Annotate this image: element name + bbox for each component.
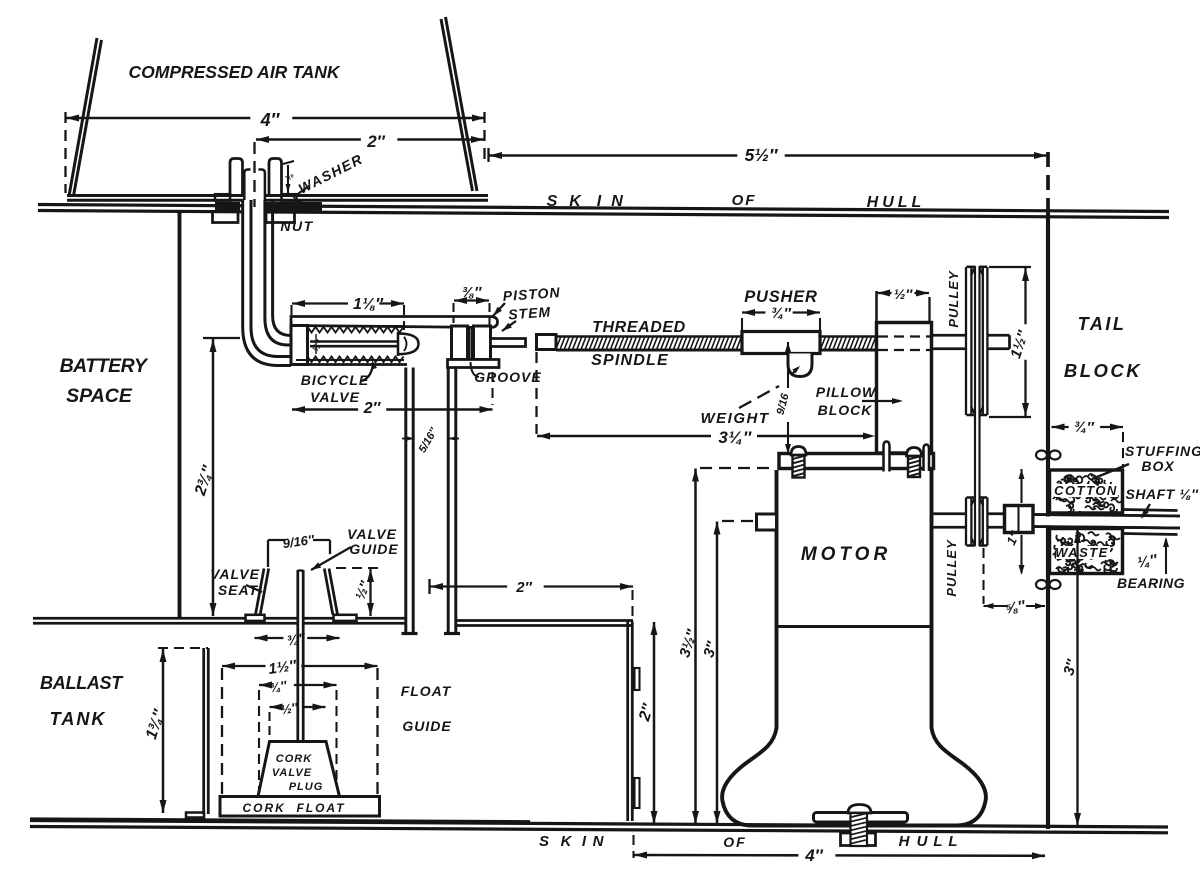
svg-text:BATTERY: BATTERY	[60, 355, 149, 377]
svg-text:NUT: NUT	[280, 218, 313, 234]
svg-text:BICYCLE: BICYCLE	[301, 372, 369, 388]
svg-text:CORK: CORK	[276, 753, 312, 765]
svg-text:¾″: ¾″	[269, 678, 289, 696]
svg-text:VALVE: VALVE	[272, 767, 312, 779]
svg-text:GUIDE: GUIDE	[402, 718, 451, 734]
svg-text:2″: 2″	[515, 579, 532, 596]
svg-text:BEARING: BEARING	[1117, 575, 1185, 591]
svg-text:2″: 2″	[363, 400, 382, 417]
svg-text:3¼″: 3¼″	[718, 428, 752, 447]
svg-text:VALVE: VALVE	[310, 389, 360, 405]
svg-text:½″: ½″	[280, 700, 300, 718]
svg-text:⅝″: ⅝″	[1004, 597, 1027, 617]
svg-text:GROOVE: GROOVE	[474, 369, 541, 385]
svg-text:OF: OF	[732, 192, 757, 209]
svg-text:½″: ½″	[894, 286, 914, 302]
svg-text:L: L	[933, 833, 942, 850]
svg-text:BLOCK: BLOCK	[1064, 360, 1142, 381]
svg-text:N: N	[593, 833, 605, 850]
svg-text:BALLAST: BALLAST	[40, 673, 124, 693]
svg-text:WASTE: WASTE	[1055, 545, 1109, 560]
svg-text:SPINDLE: SPINDLE	[591, 352, 669, 369]
svg-text:BLOCK: BLOCK	[818, 402, 873, 418]
svg-text:N: N	[611, 193, 623, 210]
svg-text:PUSHER: PUSHER	[744, 288, 818, 306]
svg-text:⅜″: ⅜″	[462, 284, 483, 301]
svg-text:MOTOR: MOTOR	[801, 544, 891, 565]
svg-text:5½″: 5½″	[745, 145, 778, 165]
svg-text:H: H	[899, 833, 911, 850]
svg-text:COMPRESSED AIR TANK: COMPRESSED AIR TANK	[129, 62, 341, 82]
svg-text:U: U	[917, 833, 929, 850]
svg-text:2″: 2″	[366, 132, 385, 151]
svg-text:HULL: HULL	[867, 194, 926, 211]
svg-text:TAIL: TAIL	[1078, 314, 1127, 334]
svg-text:STUFFING: STUFFING	[1125, 443, 1200, 459]
svg-text:¾″: ¾″	[771, 305, 792, 322]
svg-text:SHAFT ⅛″: SHAFT ⅛″	[1126, 486, 1200, 502]
svg-text:PILLOW: PILLOW	[816, 384, 877, 400]
svg-text:4″: 4″	[260, 110, 281, 130]
svg-text:¼″: ¼″	[1136, 551, 1159, 571]
svg-text:S: S	[547, 193, 558, 210]
svg-text:K: K	[561, 833, 573, 850]
svg-text:SPACE: SPACE	[66, 385, 133, 407]
svg-text:BOX: BOX	[1141, 458, 1175, 474]
svg-text:TANK: TANK	[50, 709, 107, 729]
svg-text:FLOAT: FLOAT	[401, 683, 452, 699]
svg-text:4″: 4″	[804, 846, 823, 865]
svg-text:THREADED: THREADED	[592, 319, 686, 336]
svg-text:GUIDE: GUIDE	[349, 541, 398, 557]
svg-text:SEAT: SEAT	[218, 582, 259, 598]
svg-text:VALVE: VALVE	[347, 526, 397, 542]
svg-text:PLUG: PLUG	[289, 781, 324, 793]
svg-text:S: S	[539, 833, 549, 850]
svg-text:PULLEY: PULLEY	[946, 270, 961, 328]
svg-text:¾″: ¾″	[1074, 419, 1095, 436]
svg-text:STEM: STEM	[508, 304, 552, 323]
svg-text:K: K	[569, 193, 582, 210]
svg-text:CORK FLOAT: CORK FLOAT	[242, 801, 345, 815]
svg-text:I: I	[597, 193, 602, 210]
svg-text:COTTON: COTTON	[1054, 483, 1118, 498]
svg-text:VALVE: VALVE	[210, 566, 260, 582]
svg-text:L: L	[948, 833, 957, 850]
svg-text:WEIGHT: WEIGHT	[701, 410, 770, 427]
svg-text:OF: OF	[723, 834, 746, 850]
svg-text:1⅛″: 1⅛″	[353, 296, 384, 313]
svg-text:PULLEY: PULLEY	[944, 539, 959, 597]
